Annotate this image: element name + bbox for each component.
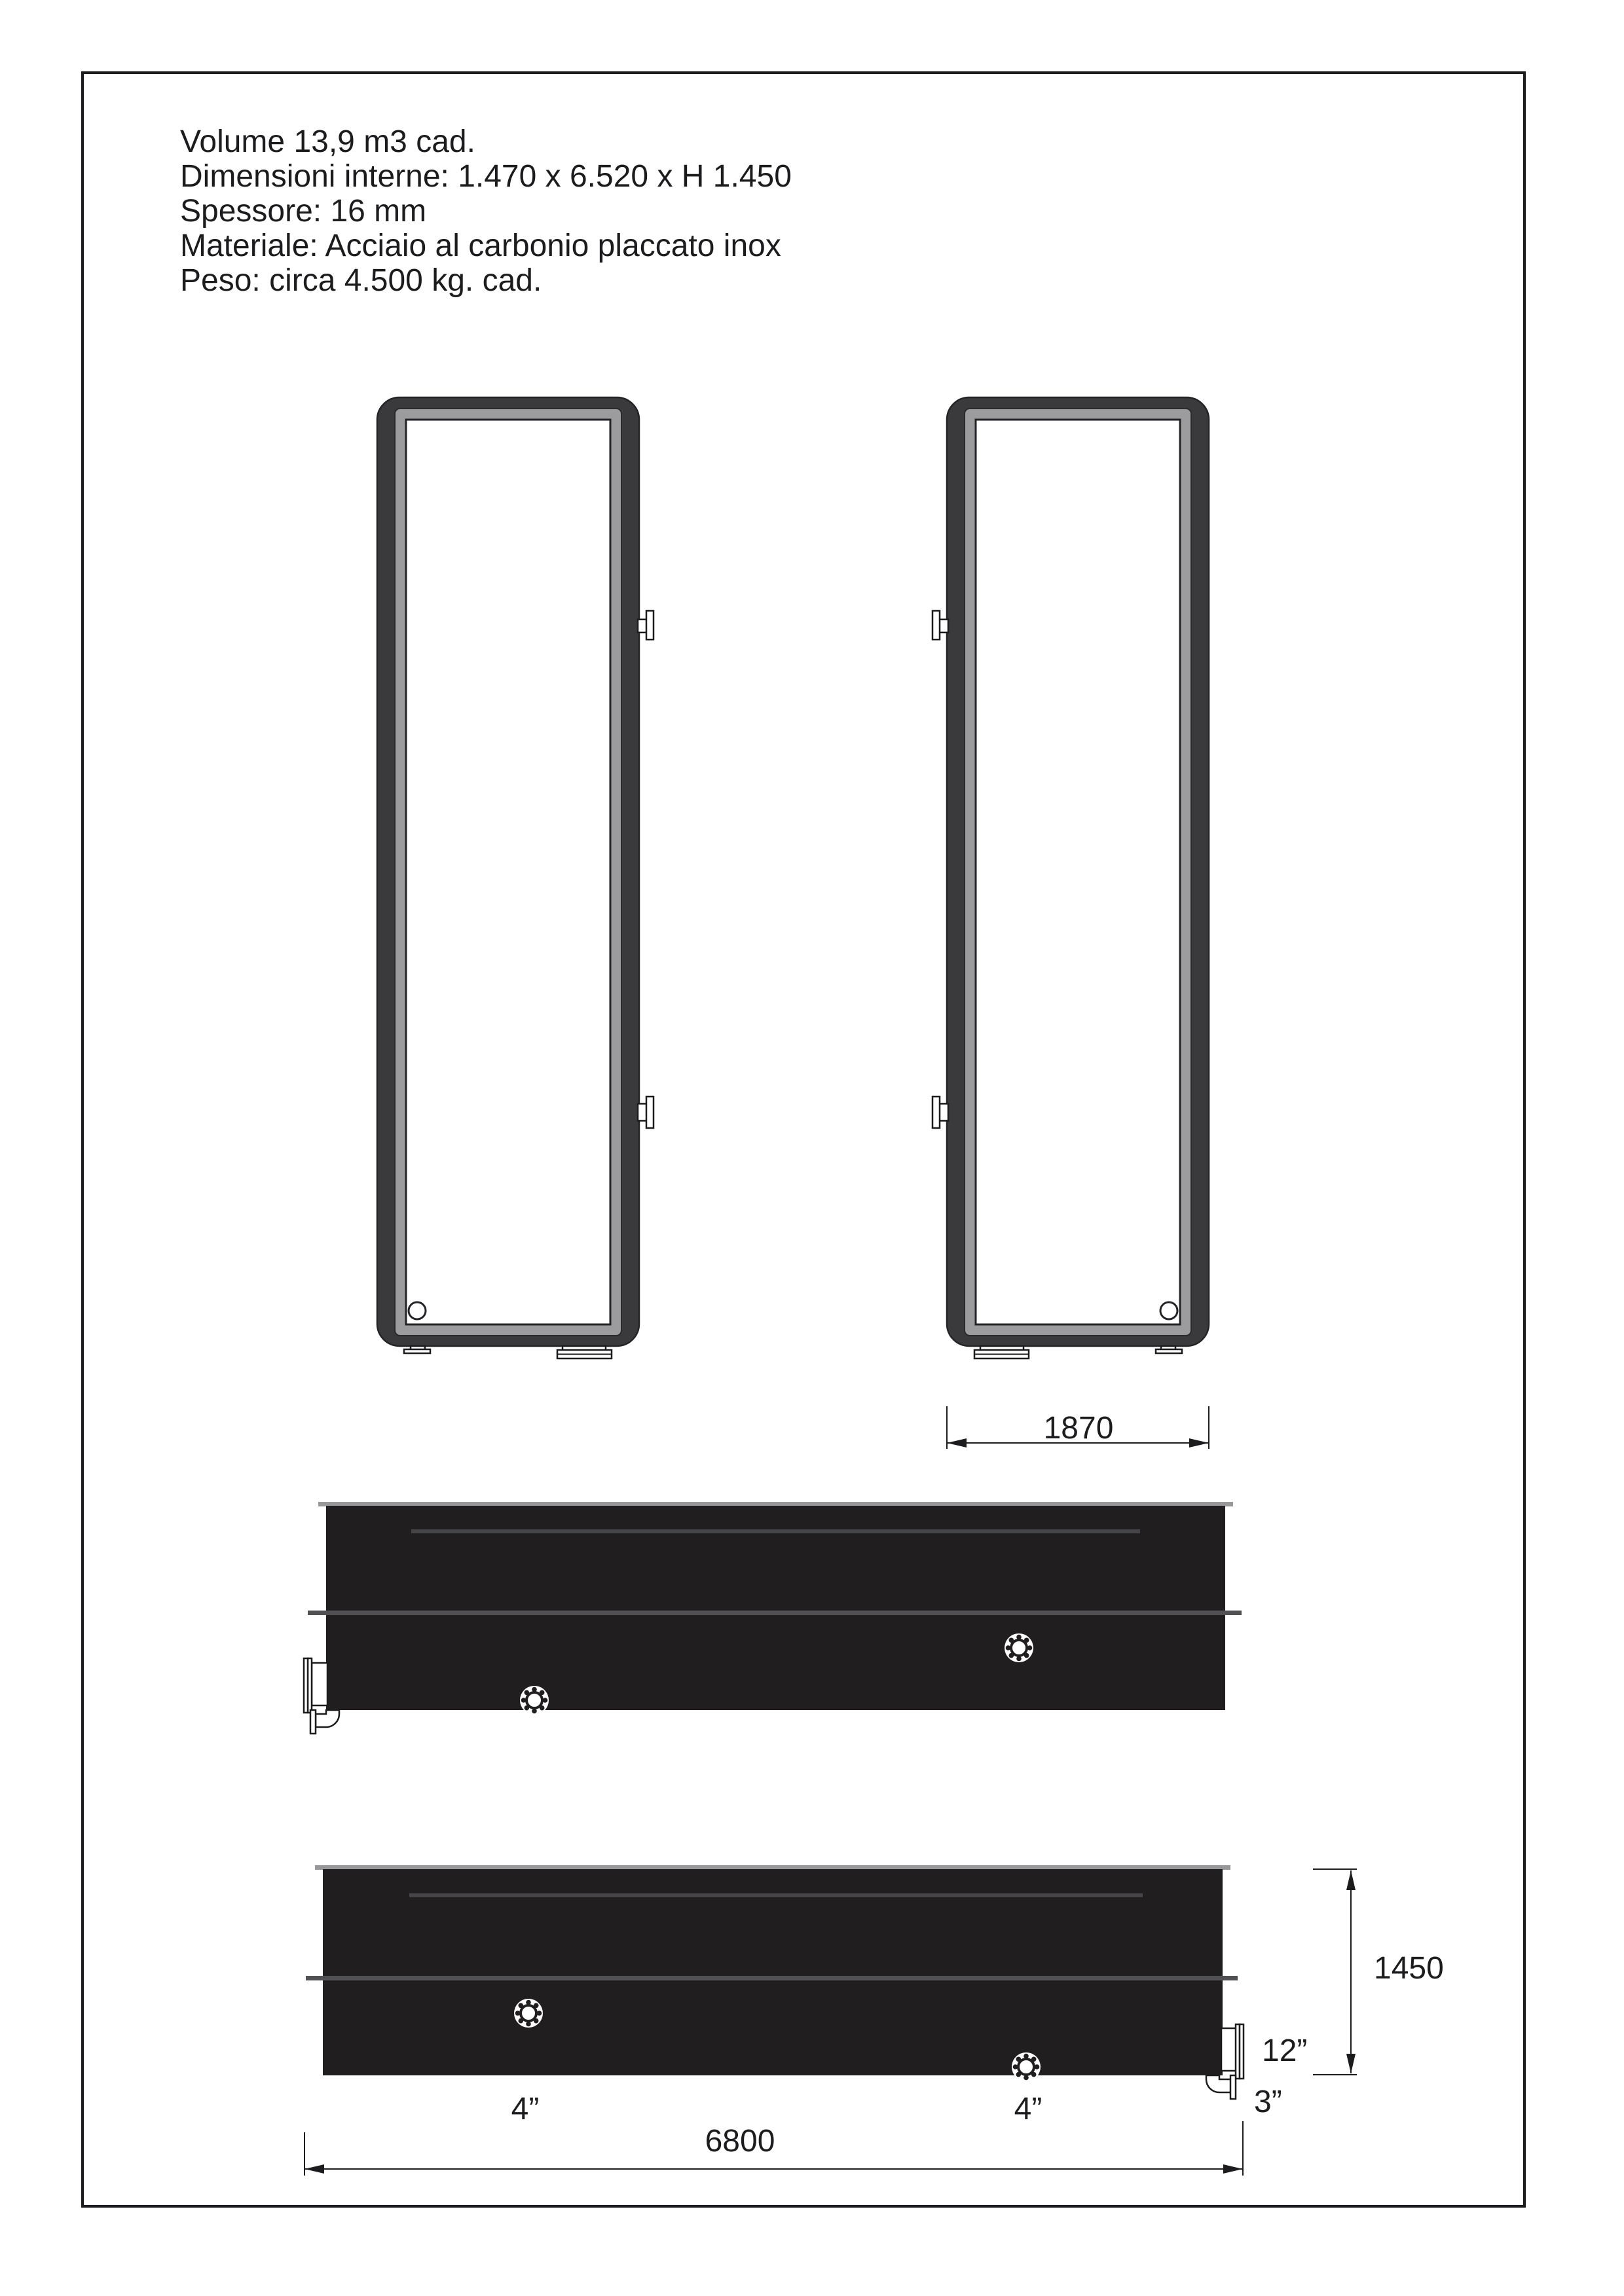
drawing-page: Volume 13,9 m3 cad. Dimensioni interne: … — [0, 0, 1624, 2296]
tank-side-view-lower — [306, 1865, 1244, 2099]
label-4in-left: 4” — [511, 2092, 540, 2126]
dim-label-6800: 6800 — [705, 2124, 775, 2159]
dim-label-1870: 1870 — [1044, 1411, 1114, 1446]
arrowhead-left — [304, 2164, 324, 2174]
dimension-6800: 6800 — [304, 2121, 1243, 2176]
drain-elbow — [316, 1710, 339, 1727]
spec-line-volume: Volume 13,9 m3 cad. — [180, 124, 475, 159]
nozzle-flange — [932, 611, 940, 640]
lid-edge — [315, 1865, 1230, 1870]
label-4in-right: 4” — [1014, 2092, 1043, 2126]
manhole-flange-plate — [1240, 2024, 1244, 2079]
spec-line-materiale: Materiale: Acciaio al carbonio placcato … — [180, 228, 781, 263]
mid-band — [306, 1976, 1238, 1980]
tank-top-view-right — [932, 397, 1209, 1358]
drain-elbow — [1206, 2075, 1232, 2092]
arrowhead-down — [1346, 2054, 1356, 2073]
tank-body — [323, 1869, 1223, 2075]
drain-hole — [1160, 1302, 1177, 1319]
flange-4in — [1012, 2052, 1041, 2081]
foot-base — [404, 1349, 430, 1353]
flange-4in — [520, 1686, 549, 1715]
foot-base — [1156, 1349, 1182, 1353]
weld-seam-line — [409, 1893, 1143, 1897]
arrowhead-right — [1223, 2164, 1243, 2174]
manhole-flange-plate — [304, 1658, 308, 1713]
lid-edge — [318, 1502, 1233, 1506]
dimension-1450: 1450 — [1313, 1869, 1444, 2075]
tank-body — [326, 1506, 1225, 1710]
weld-seam-line — [411, 1529, 1140, 1533]
manhole-stub — [1221, 2028, 1237, 2071]
arrowhead-right — [1189, 1438, 1209, 1448]
flange-4in — [514, 1999, 543, 2028]
spec-line-dimensioni: Dimensioni interne: 1.470 x 6.520 x H 1.… — [180, 159, 792, 194]
nozzle-flange — [646, 611, 654, 640]
manhole-stub — [312, 1663, 327, 1705]
spec-line-spessore: Spessore: 16 mm — [180, 194, 426, 228]
spec-text-block: Volume 13,9 m3 cad. Dimensioni interne: … — [180, 124, 792, 298]
mid-band — [308, 1611, 1242, 1615]
arrowhead-up — [1346, 1870, 1356, 1890]
arrowhead-left — [947, 1438, 967, 1448]
nozzle-flange — [932, 1097, 940, 1128]
tank-interior — [406, 420, 610, 1324]
drain-flange-plate — [310, 1710, 316, 1734]
nozzle-flange — [646, 1097, 654, 1128]
flange-4in — [1005, 1633, 1033, 1662]
technical-drawing: Volume 13,9 m3 cad. Dimensioni interne: … — [0, 0, 1624, 2296]
spec-line-peso: Peso: circa 4.500 kg. cad. — [180, 263, 542, 298]
tank-top-view-left — [377, 397, 654, 1358]
dimension-1870: 1870 — [947, 1406, 1209, 1449]
label-3in-drain: 3” — [1254, 2085, 1282, 2119]
dim-label-1450: 1450 — [1374, 1951, 1444, 1986]
drain-flange-plate — [1230, 2075, 1236, 2099]
label-12in-nozzle: 12” — [1262, 2033, 1307, 2068]
drain-hole — [409, 1302, 426, 1319]
tank-interior — [976, 420, 1180, 1324]
tank-side-view-upper — [304, 1502, 1242, 1734]
